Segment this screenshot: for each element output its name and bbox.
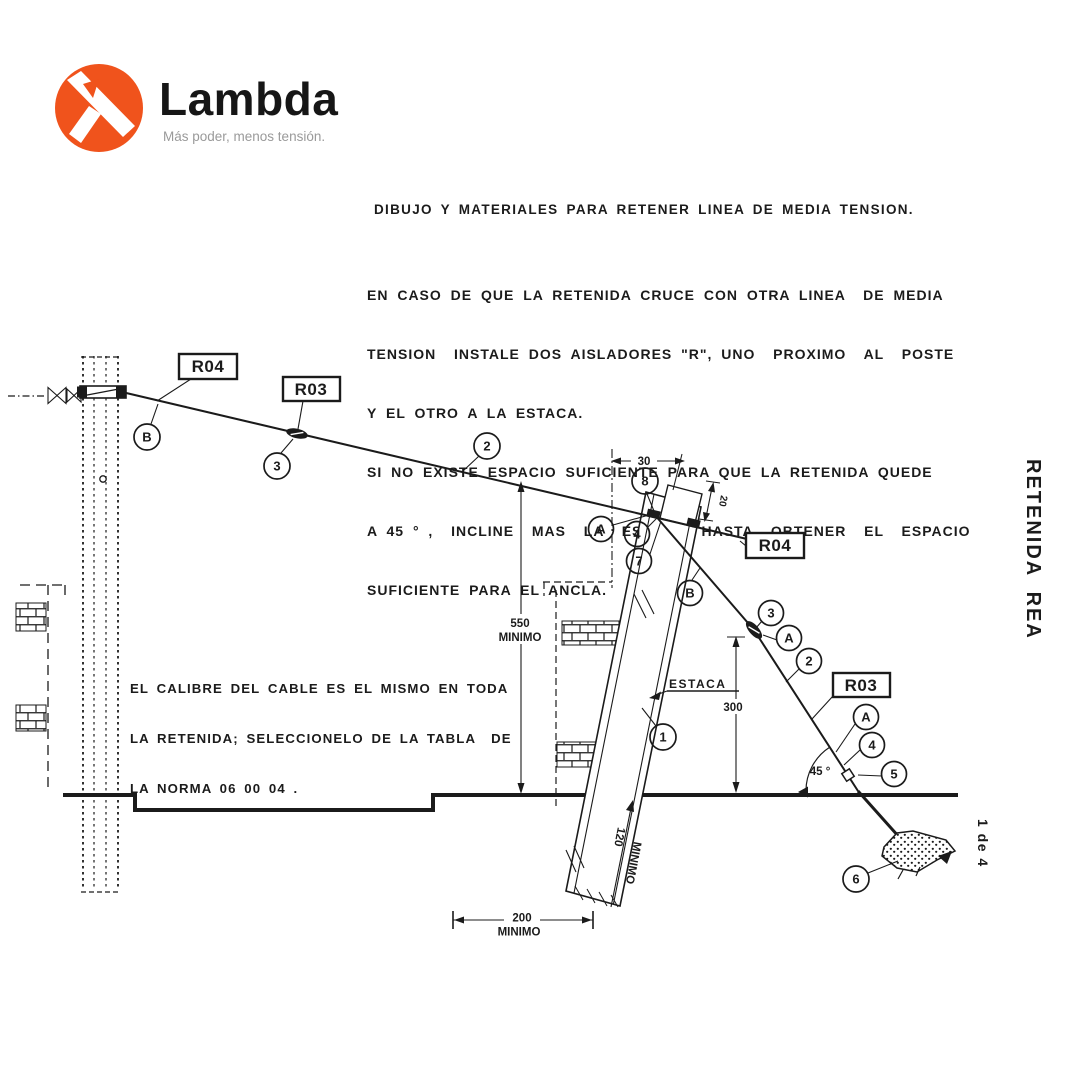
marker-8-stake-top: 8 — [632, 468, 658, 494]
svg-text:ESTACA: ESTACA — [669, 677, 726, 691]
dim-300-value: 300 — [723, 702, 742, 714]
svg-text:R03: R03 — [295, 380, 328, 399]
svg-text:3: 3 — [273, 459, 280, 474]
dim-550-minimo: MINIMO — [499, 632, 542, 644]
brick-wall — [16, 603, 46, 631]
svg-text:8: 8 — [641, 474, 648, 489]
svg-text:4: 4 — [868, 738, 876, 753]
angle-45-label: 45 ° — [810, 766, 831, 778]
left-wall-dashed — [16, 585, 65, 793]
svg-text:7: 7 — [635, 554, 642, 569]
svg-text:R03: R03 — [845, 676, 878, 695]
dim-200-value: 200 — [512, 913, 531, 925]
dimension-300: 300 — [714, 636, 754, 793]
ground-line — [63, 795, 958, 810]
svg-text:R04: R04 — [192, 357, 225, 376]
dim-200-minimo: MINIMO — [498, 927, 541, 939]
technical-drawing: 30 20 550 MINIMO — [0, 0, 1080, 1080]
marker-6-anchor: 6 — [843, 866, 869, 892]
dim-30-value: 30 — [638, 456, 651, 468]
angle-45: 45 ° — [798, 747, 831, 798]
svg-text:R04: R04 — [759, 536, 792, 555]
marker-A-stake-top: A — [589, 517, 614, 542]
svg-text:3: 3 — [767, 606, 774, 621]
marker-2-lower: 2 — [797, 649, 822, 674]
dimension-200: 200 MINIMO — [453, 911, 593, 939]
dimension-550: 550 MINIMO — [495, 481, 547, 794]
svg-text:B: B — [685, 586, 694, 601]
marker-A-ground: A — [854, 705, 879, 730]
svg-text:2: 2 — [483, 439, 490, 454]
ref-box-r04-pole: R04 — [179, 354, 237, 379]
ref-box-r04-stake: R04 — [746, 533, 804, 558]
marker-5-ground: 5 — [882, 762, 907, 787]
brick-wall — [16, 705, 46, 731]
rod-coupling — [842, 769, 854, 781]
ref-box-r03-pole: R03 — [283, 377, 340, 401]
svg-text:A: A — [861, 710, 871, 725]
anchor-plate — [882, 831, 955, 879]
guy-insulator-upper — [285, 426, 309, 440]
pole-bolt-hole — [100, 476, 106, 482]
dim-20-value: 20 — [716, 494, 729, 507]
pole-deadend-clamp — [77, 386, 126, 398]
ref-box-r03-stake: R03 — [833, 673, 890, 697]
svg-text:B: B — [142, 430, 151, 445]
marker-3-pole: 3 — [264, 453, 290, 479]
marker-3-lower: 3 — [759, 601, 784, 626]
svg-text:6: 6 — [852, 872, 859, 887]
svg-text:1: 1 — [659, 730, 666, 745]
svg-text:A: A — [784, 631, 794, 646]
marker-B-pole: B — [134, 424, 160, 450]
svg-text:2: 2 — [805, 654, 812, 669]
marker-4-ground: 4 — [860, 733, 885, 758]
utility-pole — [81, 356, 121, 892]
dimension-20: 20 — [699, 481, 729, 522]
svg-text:A: A — [596, 522, 606, 537]
svg-text:5: 5 — [890, 767, 897, 782]
marker-A-lower: A — [777, 626, 802, 651]
line-insulator-icon — [8, 388, 81, 404]
brick-wall — [562, 621, 619, 645]
dim-550-value: 550 — [510, 618, 529, 630]
svg-text:4: 4 — [633, 527, 641, 542]
marker-2-cable: 2 — [474, 433, 500, 459]
